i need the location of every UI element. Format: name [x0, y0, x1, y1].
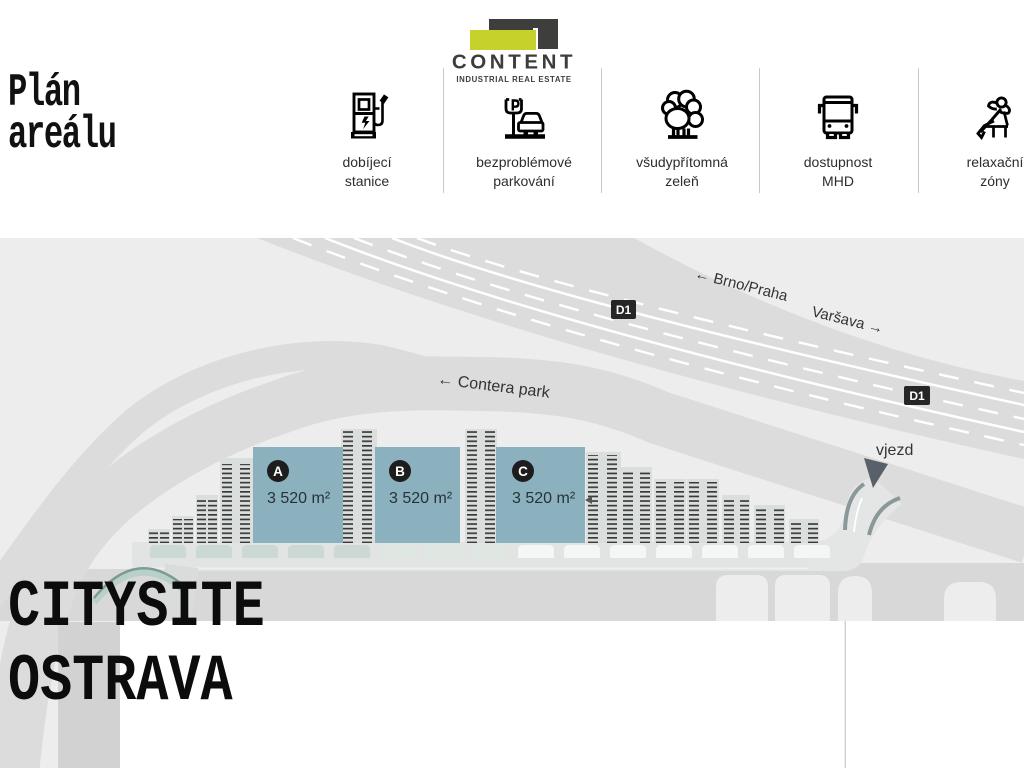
svg-text:3 520 m²: 3 520 m² — [267, 490, 331, 507]
svg-text:INDUSTRIAL REAL ESTATE: INDUSTRIAL REAL ESTATE — [456, 75, 571, 84]
svg-text:A: A — [273, 464, 283, 479]
svg-text:C: C — [518, 464, 528, 479]
svg-text:B: B — [395, 464, 405, 479]
svg-text:D1: D1 — [616, 303, 632, 317]
svg-text:D1: D1 — [909, 389, 925, 403]
svg-text:3 520 m²: 3 520 m² — [389, 490, 453, 507]
svg-text:vjezd: vjezd — [876, 442, 913, 459]
svg-text:CONTENT: CONTENT — [452, 51, 576, 74]
svg-text:3 520 m²: 3 520 m² — [512, 490, 576, 507]
